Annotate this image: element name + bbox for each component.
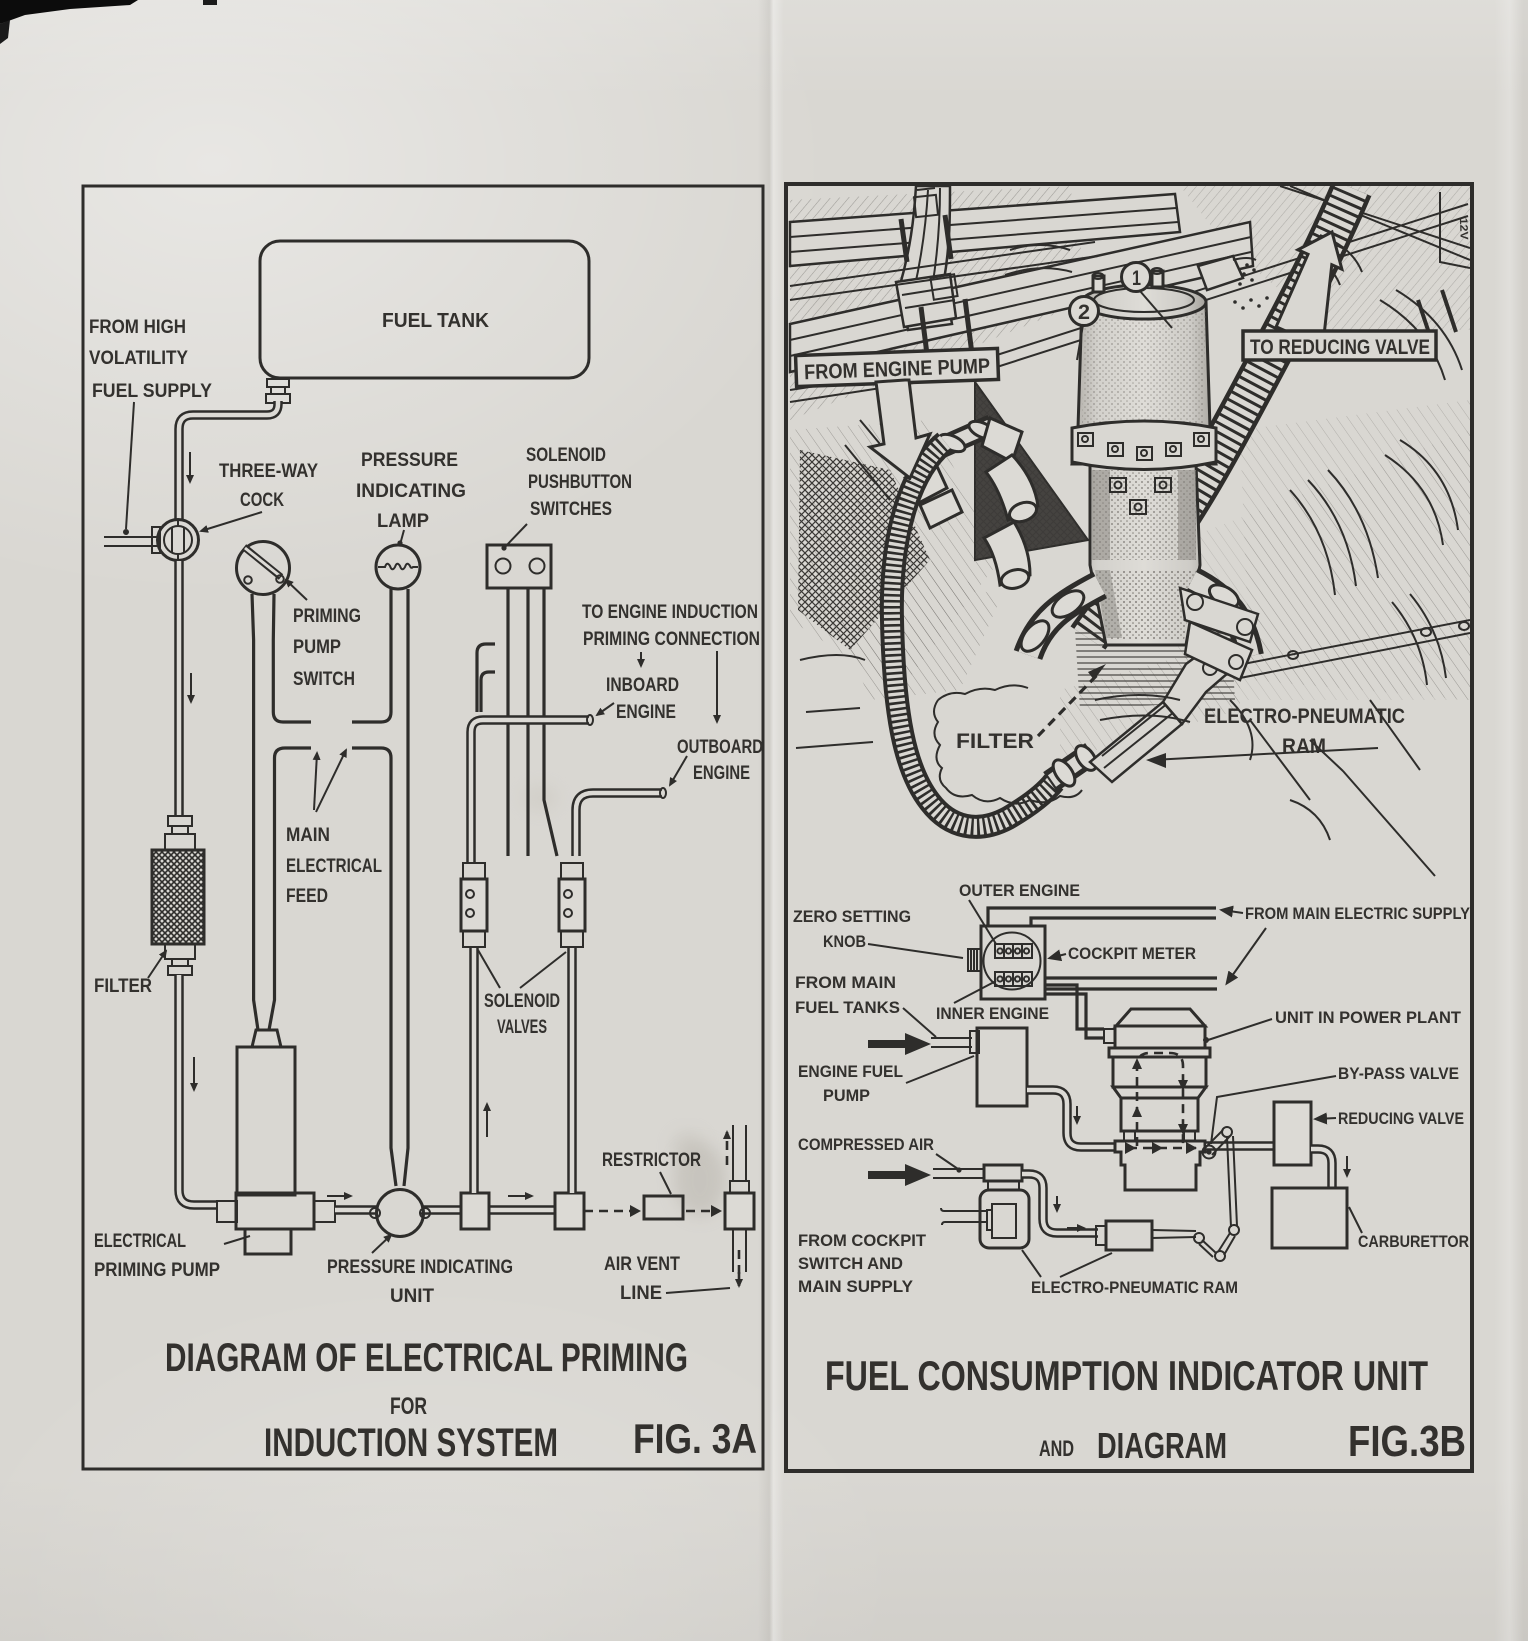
svg-text:RESTRICTOR: RESTRICTOR [602, 1150, 701, 1171]
svg-text:FILTER: FILTER [956, 730, 1034, 753]
svg-text:AIR VENT: AIR VENT [604, 1254, 680, 1275]
svg-text:OUTER ENGINE: OUTER ENGINE [959, 881, 1080, 900]
svg-text:LAMP: LAMP [377, 511, 429, 532]
svg-text:MAIN: MAIN [286, 825, 330, 846]
svg-text:FOR: FOR [390, 1393, 427, 1420]
svg-text:PRESSURE: PRESSURE [361, 450, 458, 471]
svg-text:INDUCTION SYSTEM: INDUCTION SYSTEM [264, 1421, 558, 1465]
svg-text:PRESSURE INDICATING: PRESSURE INDICATING [327, 1257, 513, 1278]
svg-text:COCKPIT METER: COCKPIT METER [1068, 944, 1196, 963]
svg-text:CARBURETTOR: CARBURETTOR [1358, 1232, 1469, 1251]
svg-text:DIAGRAM: DIAGRAM [1097, 1425, 1227, 1466]
svg-text:VALVES: VALVES [497, 1017, 547, 1038]
svg-text:REDUCING VALVE: REDUCING VALVE [1338, 1109, 1464, 1128]
svg-text:FUEL TANKS: FUEL TANKS [795, 998, 900, 1017]
svg-text:AND: AND [1039, 1436, 1074, 1461]
svg-text:FROM MAIN: FROM MAIN [795, 973, 896, 992]
svg-text:FEED: FEED [286, 886, 328, 907]
svg-text:KNOB: KNOB [823, 932, 866, 951]
svg-text:VOLATILITY: VOLATILITY [89, 348, 188, 369]
svg-text:PUMP: PUMP [293, 637, 341, 658]
svg-text:FROM HIGH: FROM HIGH [89, 317, 186, 338]
svg-text:COCK: COCK [240, 490, 284, 511]
svg-text:SWITCH AND: SWITCH AND [798, 1254, 903, 1273]
svg-text:SOLENOID: SOLENOID [484, 991, 560, 1012]
svg-text:OUTBOARD: OUTBOARD [677, 737, 763, 758]
svg-text:RAM: RAM [1282, 735, 1326, 758]
svg-text:ZERO SETTING: ZERO SETTING [793, 907, 911, 926]
svg-text:THREE-WAY: THREE-WAY [219, 461, 318, 482]
svg-text:ELECTRO-PNEUMATIC: ELECTRO-PNEUMATIC [1204, 705, 1405, 728]
svg-text:ELECTRO-PNEUMATIC RAM: ELECTRO-PNEUMATIC RAM [1031, 1278, 1238, 1297]
svg-text:PRIMING PUMP: PRIMING PUMP [94, 1260, 220, 1281]
svg-text:FUEL TANK: FUEL TANK [382, 310, 490, 332]
svg-text:1: 1 [1132, 267, 1141, 290]
svg-text:BY-PASS VALVE: BY-PASS VALVE [1338, 1064, 1459, 1083]
svg-text:ELECTRICAL: ELECTRICAL [286, 856, 382, 877]
svg-text:PRIMING: PRIMING [293, 606, 361, 627]
svg-text:INNER ENGINE: INNER ENGINE [936, 1004, 1049, 1023]
svg-text:PRIMING CONNECTION: PRIMING CONNECTION [583, 629, 760, 650]
svg-text:PUSHBUTTON: PUSHBUTTON [528, 472, 632, 493]
svg-text:FUEL SUPPLY: FUEL SUPPLY [92, 381, 212, 402]
svg-text:12V: 12V [1457, 218, 1470, 241]
svg-text:2: 2 [1078, 301, 1090, 324]
svg-text:TO REDUCING VALVE: TO REDUCING VALVE [1250, 336, 1430, 359]
svg-text:FUEL CONSUMPTION INDICATOR UNI: FUEL CONSUMPTION INDICATOR UNIT [825, 1352, 1428, 1399]
svg-text:FILTER: FILTER [94, 976, 152, 997]
svg-text:UNIT IN POWER PLANT: UNIT IN POWER PLANT [1275, 1008, 1462, 1027]
svg-text:UNIT: UNIT [390, 1286, 434, 1307]
svg-text:FROM MAIN ELECTRIC SUPPLY: FROM MAIN ELECTRIC SUPPLY [1245, 904, 1471, 923]
svg-text:INBOARD: INBOARD [606, 675, 679, 696]
svg-text:TO ENGINE INDUCTION: TO ENGINE INDUCTION [582, 602, 758, 623]
svg-text:FROM COCKPIT: FROM COCKPIT [798, 1231, 927, 1250]
svg-text:COMPRESSED AIR: COMPRESSED AIR [798, 1135, 934, 1154]
svg-text:PUMP: PUMP [823, 1086, 870, 1105]
svg-text:SWITCHES: SWITCHES [530, 499, 612, 520]
svg-text:ELECTRICAL: ELECTRICAL [94, 1231, 186, 1252]
svg-text:MAIN SUPPLY: MAIN SUPPLY [798, 1277, 914, 1296]
svg-text:ENGINE: ENGINE [616, 702, 676, 723]
svg-text:FIG.3B: FIG.3B [1348, 1417, 1466, 1466]
svg-text:ENGINE FUEL: ENGINE FUEL [798, 1062, 903, 1081]
svg-text:LINE: LINE [620, 1283, 662, 1304]
svg-text:ENGINE: ENGINE [693, 763, 750, 784]
svg-text:SOLENOID: SOLENOID [526, 445, 606, 466]
svg-text:FIG. 3A: FIG. 3A [633, 1415, 757, 1462]
svg-text:INDICATING: INDICATING [356, 481, 466, 502]
svg-text:SWITCH: SWITCH [293, 669, 355, 690]
svg-text:DIAGRAM OF ELECTRICAL PRIMING: DIAGRAM OF ELECTRICAL PRIMING [165, 1336, 688, 1380]
